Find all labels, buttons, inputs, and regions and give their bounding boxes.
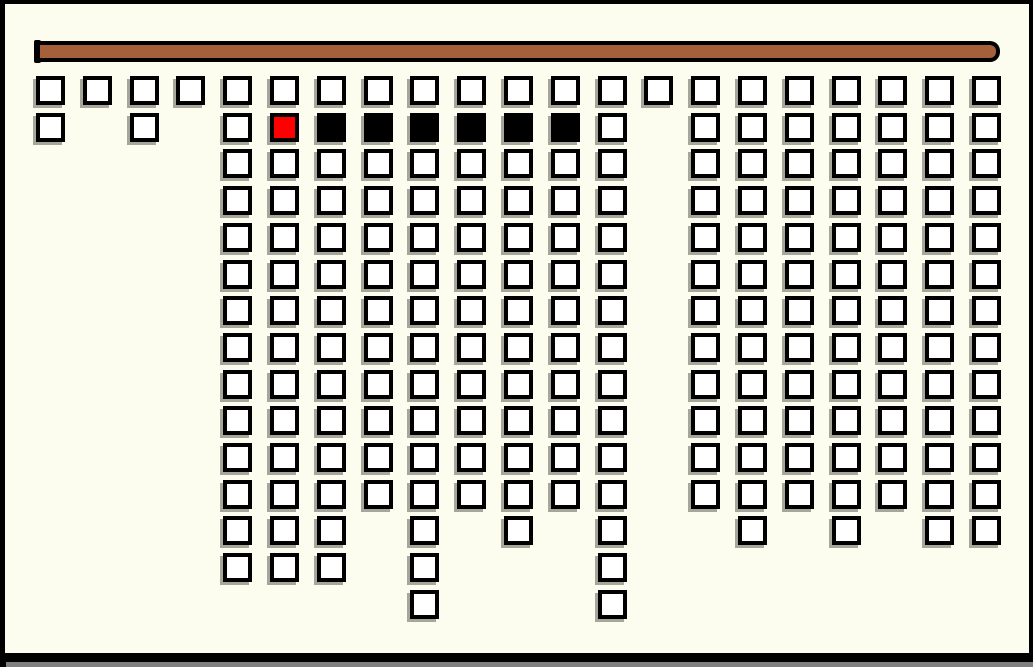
tile-black[interactable] bbox=[457, 113, 486, 142]
tile-white[interactable] bbox=[410, 260, 439, 289]
tile-white[interactable] bbox=[738, 370, 767, 399]
tile-white[interactable] bbox=[738, 113, 767, 142]
tile-black[interactable] bbox=[364, 113, 393, 142]
tile-white[interactable] bbox=[270, 333, 299, 362]
tile-white[interactable] bbox=[551, 333, 580, 362]
tile-white[interactable] bbox=[738, 149, 767, 178]
tile-white[interactable] bbox=[551, 149, 580, 178]
tile-white[interactable] bbox=[878, 260, 907, 289]
tile-white[interactable] bbox=[925, 223, 954, 252]
tile-white[interactable] bbox=[410, 76, 439, 105]
tile-white[interactable] bbox=[364, 333, 393, 362]
tile-white[interactable] bbox=[36, 76, 65, 105]
tile-white[interactable] bbox=[925, 113, 954, 142]
tile-white[interactable] bbox=[504, 443, 533, 472]
tile-white[interactable] bbox=[598, 370, 627, 399]
tile-white[interactable] bbox=[785, 443, 814, 472]
tile-white[interactable] bbox=[504, 76, 533, 105]
tile-white[interactable] bbox=[317, 370, 346, 399]
tile-white[interactable] bbox=[551, 406, 580, 435]
tile-white[interactable] bbox=[598, 333, 627, 362]
tile-white[interactable] bbox=[270, 260, 299, 289]
tile-white[interactable] bbox=[270, 186, 299, 215]
tile-white[interactable] bbox=[925, 186, 954, 215]
tile-white[interactable] bbox=[878, 113, 907, 142]
tile-white[interactable] bbox=[598, 113, 627, 142]
tile-white[interactable] bbox=[925, 76, 954, 105]
tile-white[interactable] bbox=[832, 223, 861, 252]
tile-white[interactable] bbox=[878, 296, 907, 325]
tile-white[interactable] bbox=[504, 480, 533, 509]
tile-white[interactable] bbox=[457, 149, 486, 178]
tile-white[interactable] bbox=[317, 76, 346, 105]
tile-white[interactable] bbox=[785, 260, 814, 289]
tile-white[interactable] bbox=[504, 406, 533, 435]
tile-white[interactable] bbox=[223, 149, 252, 178]
tile-white[interactable] bbox=[738, 223, 767, 252]
tile-white[interactable] bbox=[223, 333, 252, 362]
tile-white[interactable] bbox=[598, 296, 627, 325]
tile-white[interactable] bbox=[270, 223, 299, 252]
tile-white[interactable] bbox=[972, 296, 1001, 325]
tile-white[interactable] bbox=[738, 333, 767, 362]
tile-white[interactable] bbox=[410, 553, 439, 582]
tile-white[interactable] bbox=[972, 76, 1001, 105]
tile-white[interactable] bbox=[738, 443, 767, 472]
tile-white[interactable] bbox=[691, 296, 720, 325]
tile-white[interactable] bbox=[364, 223, 393, 252]
tile-white[interactable] bbox=[317, 406, 346, 435]
tile-white[interactable] bbox=[878, 333, 907, 362]
tile-white[interactable] bbox=[738, 76, 767, 105]
tile-white[interactable] bbox=[504, 516, 533, 545]
tile-white[interactable] bbox=[223, 260, 252, 289]
tile-white[interactable] bbox=[317, 296, 346, 325]
tile-white[interactable] bbox=[738, 260, 767, 289]
tile-white[interactable] bbox=[410, 590, 439, 619]
tile-white[interactable] bbox=[644, 76, 673, 105]
tile-white[interactable] bbox=[878, 149, 907, 178]
tile-white[interactable] bbox=[925, 516, 954, 545]
tile-white[interactable] bbox=[364, 296, 393, 325]
tile-white[interactable] bbox=[925, 333, 954, 362]
tile-white[interactable] bbox=[317, 443, 346, 472]
tile-white[interactable] bbox=[878, 186, 907, 215]
tile-white[interactable] bbox=[504, 260, 533, 289]
tile-white[interactable] bbox=[364, 76, 393, 105]
tile-white[interactable] bbox=[410, 370, 439, 399]
tile-white[interactable] bbox=[878, 480, 907, 509]
tile-white[interactable] bbox=[410, 443, 439, 472]
tile-white[interactable] bbox=[738, 516, 767, 545]
tile-white[interactable] bbox=[972, 260, 1001, 289]
tile-white[interactable] bbox=[410, 480, 439, 509]
tile-black[interactable] bbox=[504, 113, 533, 142]
tile-black[interactable] bbox=[317, 113, 346, 142]
tile-white[interactable] bbox=[317, 186, 346, 215]
tile-white[interactable] bbox=[270, 296, 299, 325]
tile-white[interactable] bbox=[504, 186, 533, 215]
tile-white[interactable] bbox=[317, 333, 346, 362]
board-window bbox=[0, 0, 1033, 667]
tile-white[interactable] bbox=[83, 76, 112, 105]
tile-white[interactable] bbox=[832, 76, 861, 105]
tile-white[interactable] bbox=[785, 370, 814, 399]
tile-white[interactable] bbox=[832, 296, 861, 325]
tile-white[interactable] bbox=[832, 333, 861, 362]
tile-white[interactable] bbox=[410, 149, 439, 178]
tile-white[interactable] bbox=[972, 223, 1001, 252]
tile-white[interactable] bbox=[598, 223, 627, 252]
tile-grid bbox=[0, 0, 1033, 667]
tile-white[interactable] bbox=[925, 260, 954, 289]
tile-white[interactable] bbox=[785, 186, 814, 215]
tile-white[interactable] bbox=[878, 76, 907, 105]
tile-white[interactable] bbox=[598, 443, 627, 472]
tile-white[interactable] bbox=[223, 113, 252, 142]
tile-white[interactable] bbox=[785, 223, 814, 252]
tile-white[interactable] bbox=[972, 443, 1001, 472]
tile-white[interactable] bbox=[317, 223, 346, 252]
tile-white[interactable] bbox=[878, 223, 907, 252]
tile-white[interactable] bbox=[223, 443, 252, 472]
tile-white[interactable] bbox=[972, 370, 1001, 399]
tile-white[interactable] bbox=[925, 296, 954, 325]
tile-white[interactable] bbox=[691, 223, 720, 252]
tile-white[interactable] bbox=[410, 186, 439, 215]
tile-white[interactable] bbox=[832, 113, 861, 142]
tile-white[interactable] bbox=[691, 149, 720, 178]
tile-white[interactable] bbox=[457, 370, 486, 399]
tile-white[interactable] bbox=[598, 480, 627, 509]
tile-white[interactable] bbox=[364, 443, 393, 472]
tile-white[interactable] bbox=[878, 443, 907, 472]
tile-white[interactable] bbox=[223, 406, 252, 435]
tile-white[interactable] bbox=[410, 296, 439, 325]
tile-white[interactable] bbox=[691, 370, 720, 399]
tile-white[interactable] bbox=[364, 370, 393, 399]
tile-white[interactable] bbox=[972, 516, 1001, 545]
tile-white[interactable] bbox=[598, 553, 627, 582]
tile-white[interactable] bbox=[972, 113, 1001, 142]
tile-white[interactable] bbox=[598, 260, 627, 289]
tile-white[interactable] bbox=[785, 76, 814, 105]
tile-white[interactable] bbox=[223, 553, 252, 582]
tile-white[interactable] bbox=[832, 370, 861, 399]
tile-white[interactable] bbox=[223, 186, 252, 215]
tile-white[interactable] bbox=[878, 406, 907, 435]
tile-white[interactable] bbox=[223, 480, 252, 509]
tile-white[interactable] bbox=[972, 186, 1001, 215]
tile-white[interactable] bbox=[504, 333, 533, 362]
tile-white[interactable] bbox=[317, 260, 346, 289]
tile-red[interactable] bbox=[270, 113, 299, 142]
tile-white[interactable] bbox=[410, 406, 439, 435]
tile-white[interactable] bbox=[832, 149, 861, 178]
tile-white[interactable] bbox=[457, 480, 486, 509]
tile-white[interactable] bbox=[457, 260, 486, 289]
tile-white[interactable] bbox=[925, 480, 954, 509]
tile-white[interactable] bbox=[130, 76, 159, 105]
tile-white[interactable] bbox=[504, 296, 533, 325]
tile-white[interactable] bbox=[832, 260, 861, 289]
tile-white[interactable] bbox=[691, 333, 720, 362]
tile-white[interactable] bbox=[832, 443, 861, 472]
tile-black[interactable] bbox=[551, 113, 580, 142]
tile-white[interactable] bbox=[738, 296, 767, 325]
tile-white[interactable] bbox=[457, 76, 486, 105]
tile-white[interactable] bbox=[691, 406, 720, 435]
tile-white[interactable] bbox=[36, 113, 65, 142]
tile-white[interactable] bbox=[410, 223, 439, 252]
tile-white[interactable] bbox=[457, 333, 486, 362]
tile-white[interactable] bbox=[457, 186, 486, 215]
window-bottom-shadow bbox=[6, 662, 1033, 667]
tile-white[interactable] bbox=[270, 516, 299, 545]
tile-white[interactable] bbox=[691, 260, 720, 289]
tile-white[interactable] bbox=[223, 370, 252, 399]
tile-white[interactable] bbox=[785, 149, 814, 178]
tile-black[interactable] bbox=[410, 113, 439, 142]
tile-white[interactable] bbox=[176, 76, 205, 105]
tile-white[interactable] bbox=[691, 113, 720, 142]
tile-white[interactable] bbox=[317, 516, 346, 545]
tile-white[interactable] bbox=[832, 516, 861, 545]
tile-white[interactable] bbox=[972, 406, 1001, 435]
tile-white[interactable] bbox=[504, 149, 533, 178]
tile-white[interactable] bbox=[832, 480, 861, 509]
tile-white[interactable] bbox=[364, 480, 393, 509]
tile-white[interactable] bbox=[551, 296, 580, 325]
tile-white[interactable] bbox=[551, 223, 580, 252]
tile-white[interactable] bbox=[598, 76, 627, 105]
tile-white[interactable] bbox=[738, 480, 767, 509]
tile-white[interactable] bbox=[504, 370, 533, 399]
tile-white[interactable] bbox=[364, 149, 393, 178]
tile-white[interactable] bbox=[925, 149, 954, 178]
tile-white[interactable] bbox=[317, 149, 346, 178]
tile-white[interactable] bbox=[598, 590, 627, 619]
tile-white[interactable] bbox=[551, 186, 580, 215]
tile-white[interactable] bbox=[410, 333, 439, 362]
tile-white[interactable] bbox=[598, 149, 627, 178]
tile-white[interactable] bbox=[925, 406, 954, 435]
tile-white[interactable] bbox=[832, 186, 861, 215]
tile-white[interactable] bbox=[691, 480, 720, 509]
tile-white[interactable] bbox=[972, 480, 1001, 509]
tile-white[interactable] bbox=[551, 370, 580, 399]
tile-white[interactable] bbox=[691, 186, 720, 215]
tile-white[interactable] bbox=[925, 370, 954, 399]
tile-white[interactable] bbox=[317, 480, 346, 509]
tile-white[interactable] bbox=[457, 406, 486, 435]
tile-white[interactable] bbox=[223, 223, 252, 252]
tile-white[interactable] bbox=[785, 296, 814, 325]
tile-white[interactable] bbox=[785, 480, 814, 509]
tile-white[interactable] bbox=[551, 76, 580, 105]
tile-white[interactable] bbox=[691, 76, 720, 105]
tile-white[interactable] bbox=[598, 516, 627, 545]
tile-white[interactable] bbox=[270, 149, 299, 178]
tile-white[interactable] bbox=[270, 370, 299, 399]
tile-white[interactable] bbox=[972, 333, 1001, 362]
tile-white[interactable] bbox=[364, 406, 393, 435]
tile-white[interactable] bbox=[832, 406, 861, 435]
tile-white[interactable] bbox=[270, 76, 299, 105]
tile-white[interactable] bbox=[364, 186, 393, 215]
tile-white[interactable] bbox=[925, 443, 954, 472]
tile-white[interactable] bbox=[223, 76, 252, 105]
tile-white[interactable] bbox=[270, 553, 299, 582]
tile-white[interactable] bbox=[504, 223, 533, 252]
tile-white[interactable] bbox=[457, 443, 486, 472]
tile-white[interactable] bbox=[551, 480, 580, 509]
tile-white[interactable] bbox=[878, 370, 907, 399]
tile-white[interactable] bbox=[785, 333, 814, 362]
tile-white[interactable] bbox=[457, 223, 486, 252]
tile-white[interactable] bbox=[738, 186, 767, 215]
tile-white[interactable] bbox=[785, 406, 814, 435]
tile-white[interactable] bbox=[598, 406, 627, 435]
tile-white[interactable] bbox=[551, 443, 580, 472]
tile-white[interactable] bbox=[270, 406, 299, 435]
tile-white[interactable] bbox=[691, 443, 720, 472]
tile-white[interactable] bbox=[223, 296, 252, 325]
tile-white[interactable] bbox=[270, 480, 299, 509]
tile-white[interactable] bbox=[738, 406, 767, 435]
tile-white[interactable] bbox=[457, 296, 486, 325]
tile-white[interactable] bbox=[410, 516, 439, 545]
tile-white[interactable] bbox=[785, 113, 814, 142]
tile-white[interactable] bbox=[130, 113, 159, 142]
tile-white[interactable] bbox=[598, 186, 627, 215]
tile-white[interactable] bbox=[364, 260, 393, 289]
tile-white[interactable] bbox=[972, 149, 1001, 178]
tile-white[interactable] bbox=[551, 260, 580, 289]
tile-white[interactable] bbox=[223, 516, 252, 545]
tile-white[interactable] bbox=[270, 443, 299, 472]
tile-white[interactable] bbox=[317, 553, 346, 582]
